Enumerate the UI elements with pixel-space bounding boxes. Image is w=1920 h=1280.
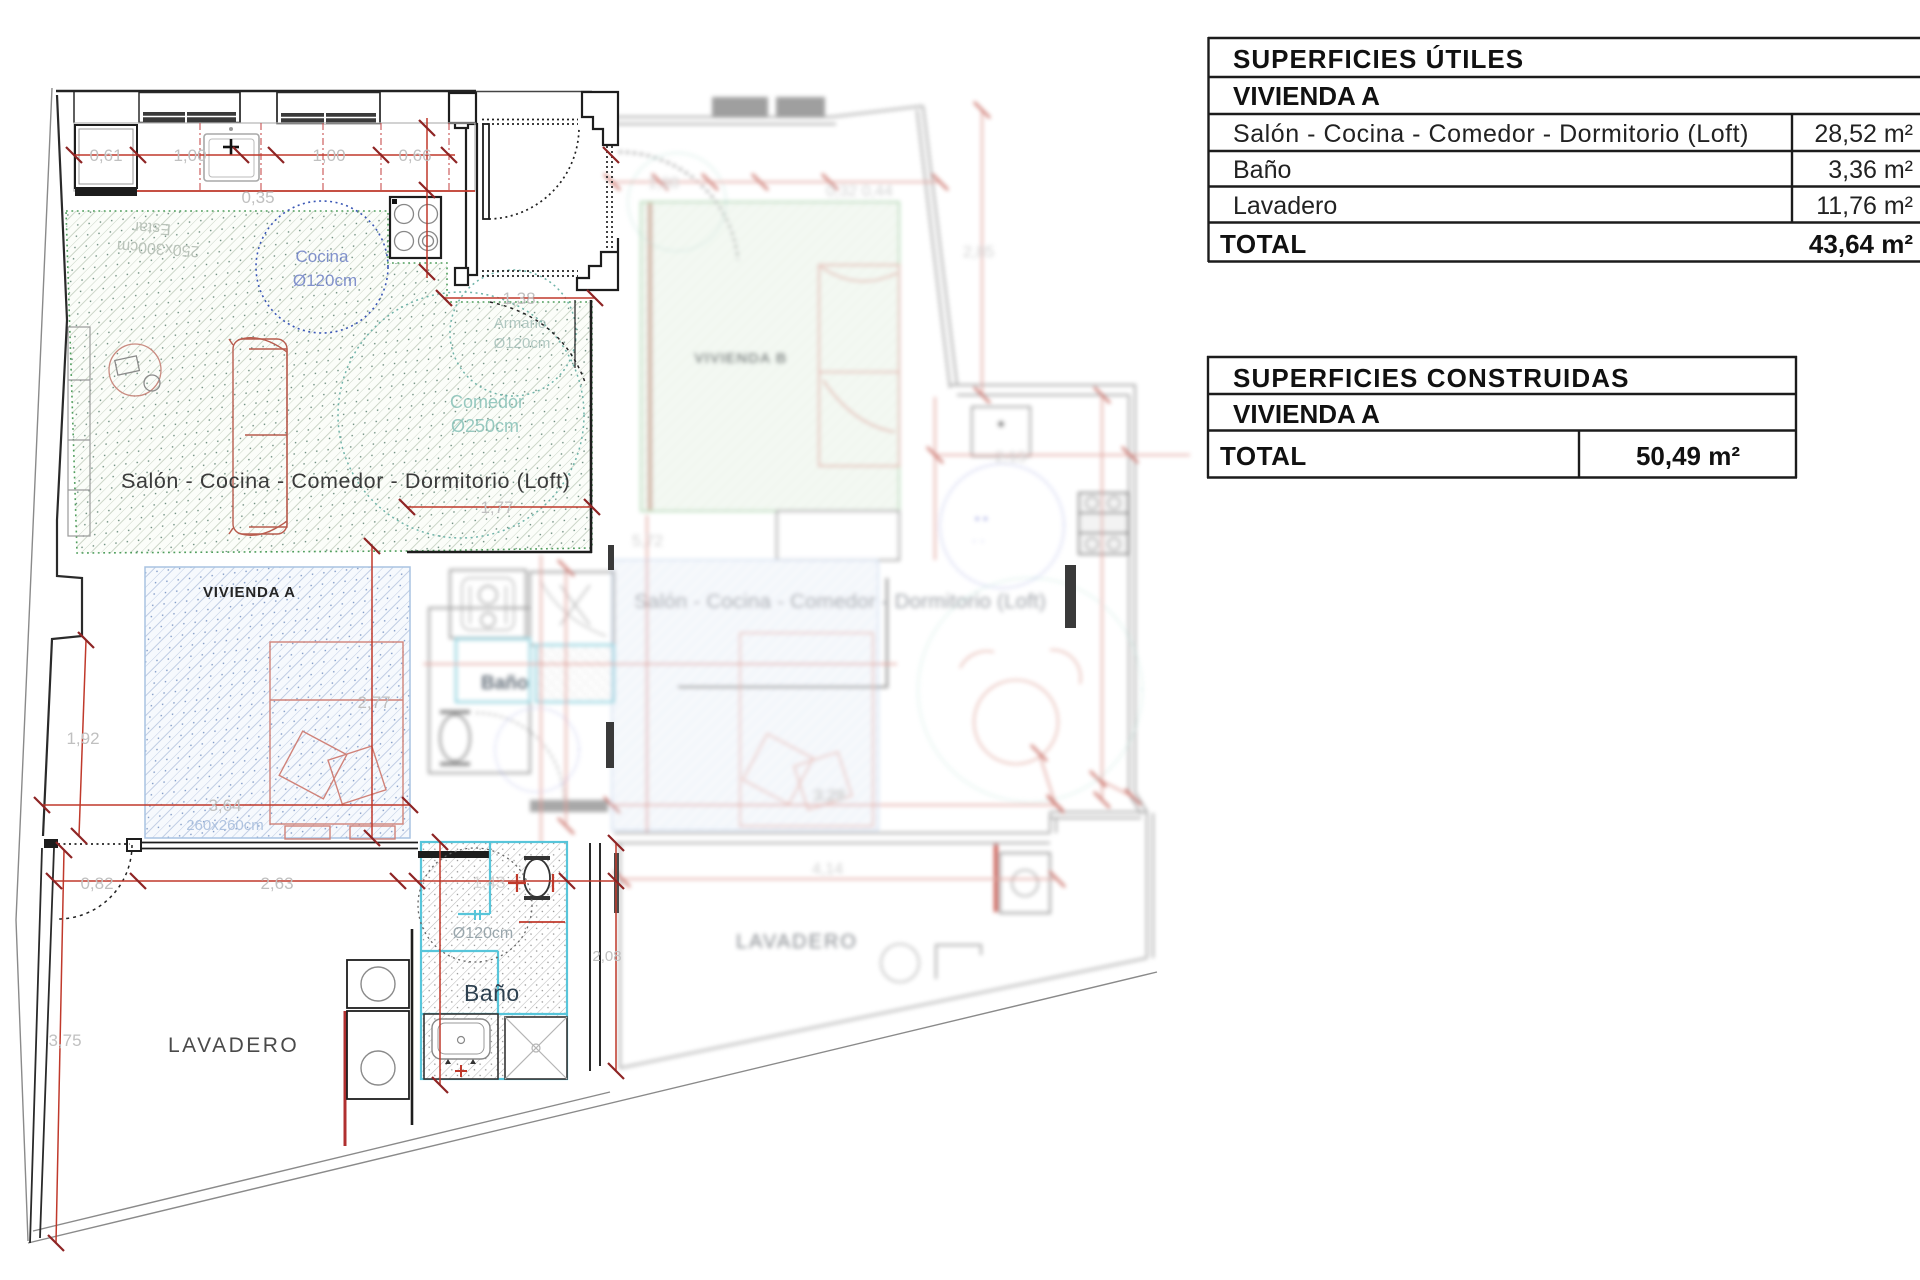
svg-text:Armario: Armario bbox=[494, 315, 547, 332]
svg-text:Salón - Cocina - Comedor - Dor: Salón - Cocina - Comedor - Dormitorio (L… bbox=[634, 590, 1046, 613]
svg-text:• •: • • bbox=[975, 511, 988, 526]
svg-text:2,63: 2,63 bbox=[260, 874, 293, 893]
svg-text:2,13: 2,13 bbox=[995, 449, 1026, 466]
svg-text:TOTAL: TOTAL bbox=[1220, 229, 1307, 259]
svg-text:Ø120cm: Ø120cm bbox=[293, 271, 357, 290]
svg-text:260x260cm: 260x260cm bbox=[186, 817, 264, 834]
svg-text:2,08: 2,08 bbox=[592, 948, 621, 965]
svg-text:0,32 0,44: 0,32 0,44 bbox=[826, 183, 893, 200]
svg-text:1,43: 1,43 bbox=[472, 873, 505, 892]
svg-text:VIVIENDA A: VIVIENDA A bbox=[1233, 399, 1380, 429]
svg-text:VIVIENDA A: VIVIENDA A bbox=[203, 584, 296, 601]
svg-text:Baño: Baño bbox=[1233, 156, 1291, 184]
svg-text:Baño: Baño bbox=[481, 673, 529, 694]
svg-text:1,00: 1,00 bbox=[173, 146, 206, 165]
svg-text:3,28: 3,28 bbox=[815, 787, 846, 804]
svg-text:5,72: 5,72 bbox=[632, 533, 663, 550]
svg-text:Estar: Estar bbox=[132, 218, 171, 238]
svg-text:1,38: 1,38 bbox=[502, 289, 535, 308]
svg-text:0,66: 0,66 bbox=[398, 146, 431, 165]
svg-text:3,36 m²: 3,36 m² bbox=[1828, 156, 1913, 184]
svg-text:0,61: 0,61 bbox=[89, 146, 122, 165]
svg-text:4,14: 4,14 bbox=[812, 861, 843, 878]
svg-text:0,82: 0,82 bbox=[80, 874, 113, 893]
svg-text:SUPERFICIES ÚTILES: SUPERFICIES ÚTILES bbox=[1233, 44, 1524, 74]
svg-text:Salón - Cocina - Comedor - Dor: Salón - Cocina - Comedor - Dormitorio (L… bbox=[121, 469, 570, 493]
svg-text:28,52 m²: 28,52 m² bbox=[1814, 120, 1913, 148]
svg-text:Lavadero: Lavadero bbox=[1233, 192, 1337, 220]
svg-text:Ø250cm: Ø250cm bbox=[451, 416, 519, 436]
svg-text:3,64: 3,64 bbox=[208, 796, 241, 815]
svg-text:· ·: · · bbox=[972, 533, 984, 548]
svg-text:1,00: 1,00 bbox=[312, 146, 345, 165]
svg-text:LAVADERO: LAVADERO bbox=[736, 931, 858, 953]
svg-text:0,35: 0,35 bbox=[241, 188, 274, 207]
svg-text:Comedor: Comedor bbox=[450, 392, 524, 412]
svg-text:LAVADERO: LAVADERO bbox=[168, 1034, 299, 1057]
svg-text:50,49 m²: 50,49 m² bbox=[1636, 441, 1740, 471]
svg-text:43,64 m²: 43,64 m² bbox=[1809, 229, 1913, 259]
svg-text:1,98: 1,98 bbox=[648, 175, 679, 192]
svg-text:2,77: 2,77 bbox=[357, 693, 390, 712]
svg-text:VIVIENDA B: VIVIENDA B bbox=[694, 350, 787, 367]
svg-text:VIVIENDA A: VIVIENDA A bbox=[1233, 81, 1380, 111]
svg-text:TOTAL: TOTAL bbox=[1220, 441, 1307, 471]
svg-text:Baño: Baño bbox=[464, 980, 520, 1006]
svg-text:Salón - Cocina - Comedor - Dor: Salón - Cocina - Comedor - Dormitorio (L… bbox=[1233, 120, 1749, 148]
svg-text:2,85: 2,85 bbox=[963, 244, 994, 261]
svg-text:11,76 m²: 11,76 m² bbox=[1816, 192, 1913, 220]
svg-text:3,75: 3,75 bbox=[48, 1031, 81, 1050]
svg-text:Cocina: Cocina bbox=[296, 247, 349, 266]
svg-text:SUPERFICIES CONSTRUIDAS: SUPERFICIES CONSTRUIDAS bbox=[1233, 363, 1630, 393]
svg-text:Ø120cm: Ø120cm bbox=[494, 335, 551, 352]
svg-text:Ø120cm: Ø120cm bbox=[453, 925, 513, 942]
svg-text:1,77: 1,77 bbox=[480, 498, 513, 517]
svg-text:1,92: 1,92 bbox=[66, 729, 99, 748]
